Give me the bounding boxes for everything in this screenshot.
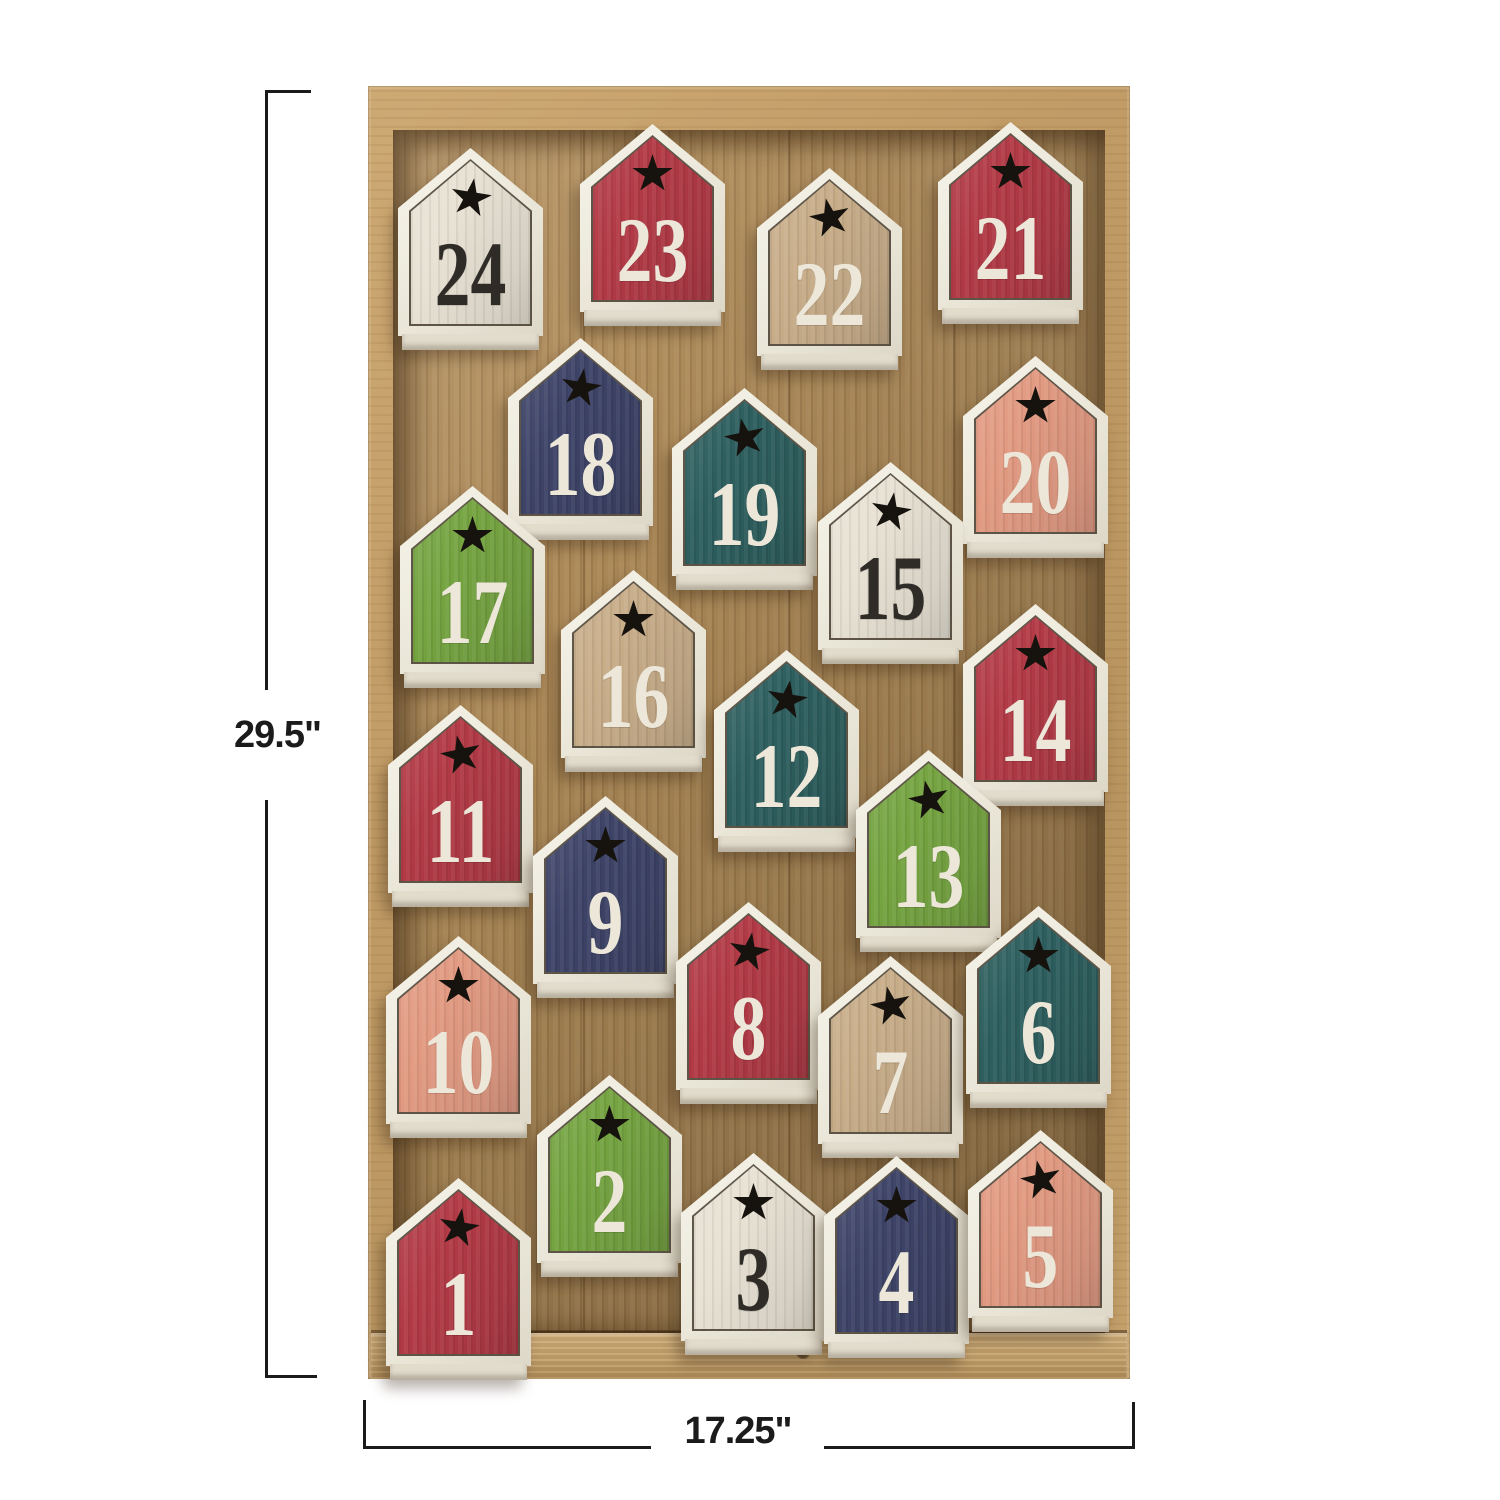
advent-house-11: 11 xyxy=(388,705,533,907)
advent-house-23: 23 xyxy=(580,124,725,326)
advent-house-22: 22 xyxy=(757,168,902,370)
height-dim-line-upper xyxy=(265,90,268,690)
house-number: 7 xyxy=(834,1036,947,1128)
height-dim-label: 29.5" xyxy=(205,716,350,754)
house-base xyxy=(761,354,898,370)
height-dim-top-tick xyxy=(265,90,311,93)
advent-house-24: 24 xyxy=(398,148,543,350)
house-number: 5 xyxy=(984,1210,1097,1302)
advent-house-21: 21 xyxy=(938,122,1083,324)
house-number: 3 xyxy=(697,1233,810,1325)
house-number: 23 xyxy=(596,204,709,296)
house-base xyxy=(967,542,1104,558)
house-number: 22 xyxy=(773,248,886,340)
advent-house-16: 16 xyxy=(561,570,706,772)
house-base xyxy=(390,1122,527,1138)
house-number: 15 xyxy=(834,542,947,634)
house-number: 10 xyxy=(402,1016,515,1108)
advent-house-2: 2 xyxy=(537,1075,682,1277)
house-base xyxy=(541,1261,678,1277)
advent-house-19: 19 xyxy=(672,388,817,590)
advent-house-7: 7 xyxy=(818,956,963,1158)
width-dim-line-left xyxy=(363,1446,651,1449)
advent-house-6: 6 xyxy=(966,906,1111,1108)
house-number: 17 xyxy=(416,566,529,658)
advent-house-15: 15 xyxy=(818,462,963,664)
house-number: 24 xyxy=(414,228,527,320)
house-base xyxy=(404,672,541,688)
house-number: 12 xyxy=(730,730,843,822)
width-dim-line-right xyxy=(824,1446,1135,1449)
advent-house-10: 10 xyxy=(386,936,531,1138)
house-number: 11 xyxy=(404,785,517,877)
house-number: 16 xyxy=(577,650,690,742)
house-number: 4 xyxy=(840,1236,953,1328)
house-base xyxy=(970,1092,1107,1108)
house-number: 20 xyxy=(979,436,1092,528)
height-dim-line-lower xyxy=(265,800,268,1378)
house-number: 2 xyxy=(553,1155,666,1247)
width-dim-left-tick xyxy=(363,1400,366,1449)
house-number: 6 xyxy=(982,986,1095,1078)
house-number: 9 xyxy=(549,876,662,968)
advent-house-1: 1 xyxy=(386,1178,531,1380)
house-base xyxy=(537,982,674,998)
house-number: 19 xyxy=(688,468,801,560)
height-dim-bottom-tick xyxy=(265,1375,317,1378)
width-dim-right-tick xyxy=(1132,1402,1135,1449)
advent-house-4: 4 xyxy=(824,1156,969,1358)
advent-house-5: 5 xyxy=(968,1130,1113,1332)
advent-house-12: 12 xyxy=(714,650,859,852)
house-base xyxy=(718,836,855,852)
house-number: 21 xyxy=(954,202,1067,294)
house-base xyxy=(685,1339,822,1355)
house-number: 8 xyxy=(692,982,805,1074)
house-base xyxy=(390,1364,527,1380)
house-base xyxy=(942,308,1079,324)
house-number: 1 xyxy=(402,1258,515,1350)
advent-house-3: 3 xyxy=(681,1153,826,1355)
width-dim-label: 17.25" xyxy=(652,1412,824,1450)
product-image: 29.5" 17.25" 24 23 xyxy=(0,0,1500,1500)
house-base xyxy=(584,310,721,326)
house-base xyxy=(828,1342,965,1358)
advent-house-20: 20 xyxy=(963,356,1108,558)
house-base xyxy=(680,1088,817,1104)
house-base xyxy=(972,1316,1109,1332)
advent-house-17: 17 xyxy=(400,486,545,688)
advent-house-9: 9 xyxy=(533,796,678,998)
house-base xyxy=(565,756,702,772)
house-base xyxy=(392,891,529,907)
advent-house-8: 8 xyxy=(676,902,821,1104)
